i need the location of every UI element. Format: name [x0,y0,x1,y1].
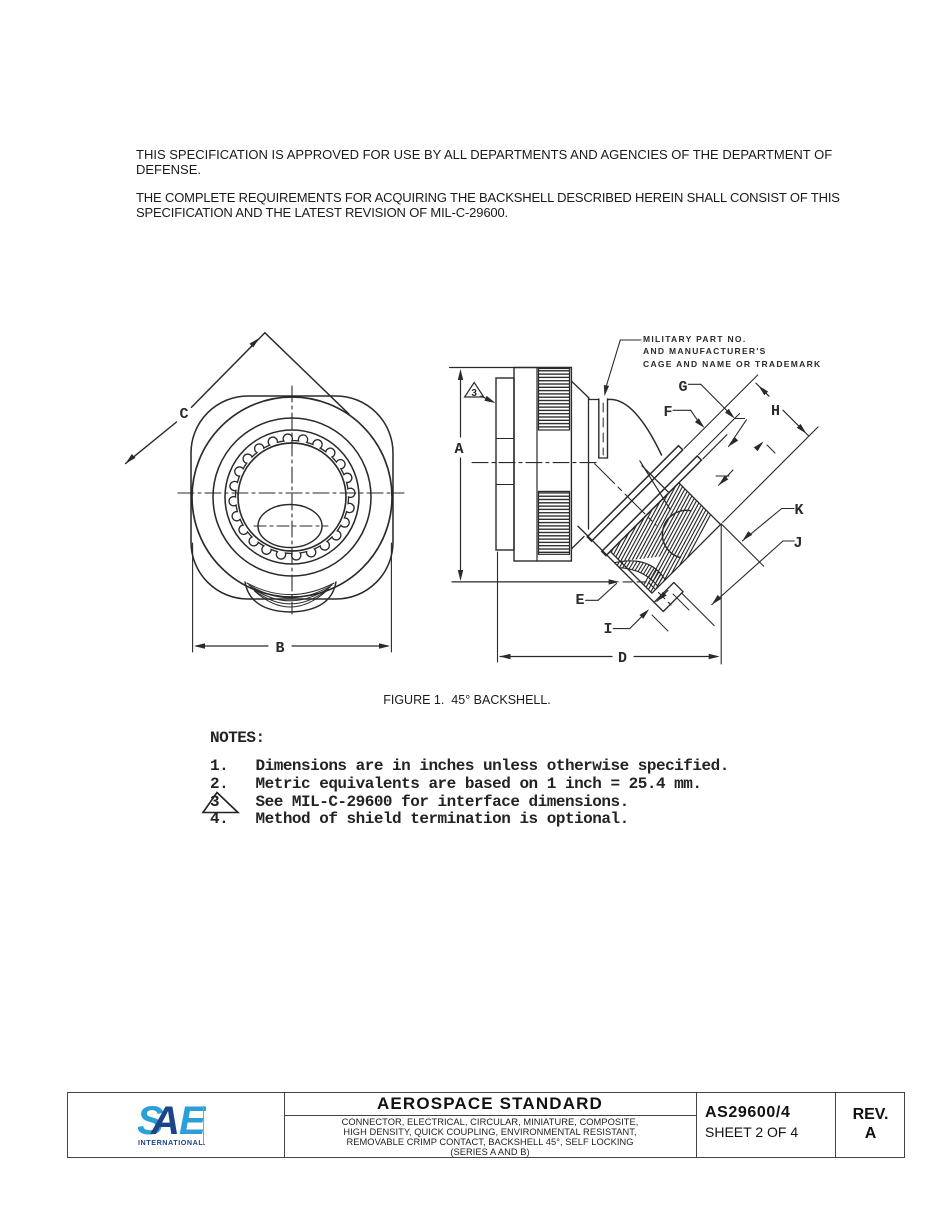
svg-text:E: E [179,1103,206,1143]
svg-text:A: A [150,1103,180,1143]
svg-text:INTERNATIONAL.: INTERNATIONAL. [138,1138,206,1147]
svg-text:3: 3 [471,388,477,399]
